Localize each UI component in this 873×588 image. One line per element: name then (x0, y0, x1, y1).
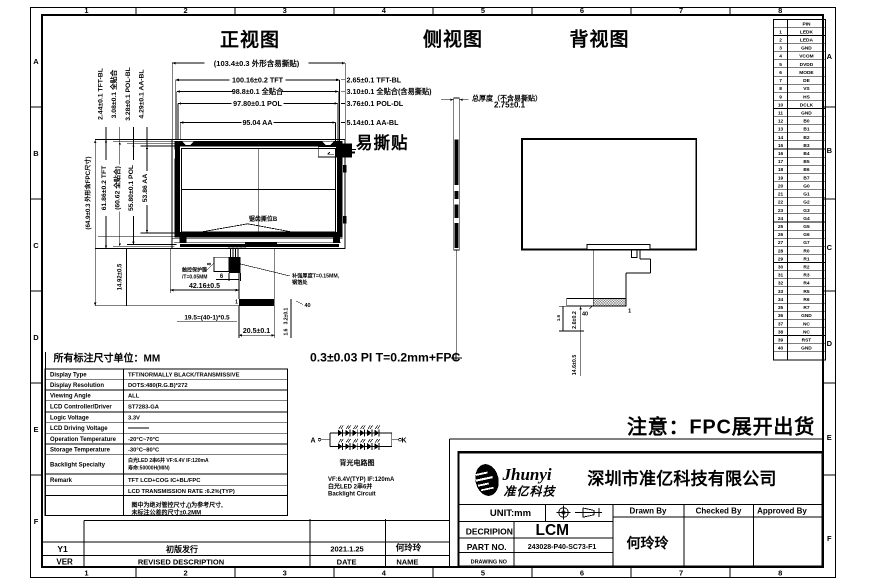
svg-text:7: 7 (779, 78, 782, 84)
svg-text:D: D (827, 339, 833, 348)
svg-text:LEDK: LEDK (800, 29, 814, 35)
svg-text:8: 8 (779, 86, 782, 92)
svg-text:所有标注尺寸单位：MM: 所有标注尺寸单位：MM (54, 352, 161, 365)
svg-text:14: 14 (778, 135, 784, 141)
svg-text:未标注公差的尺寸±0.2MM: 未标注公差的尺寸±0.2MM (132, 508, 202, 516)
svg-text:何玲玲: 何玲玲 (396, 543, 422, 553)
svg-text:GND: GND (801, 46, 812, 52)
svg-text:G5: G5 (803, 224, 810, 230)
svg-text:背视图: 背视图 (569, 28, 629, 51)
svg-text:B1: B1 (803, 127, 809, 133)
svg-text:1: 1 (628, 309, 631, 315)
svg-text:B7: B7 (803, 175, 809, 181)
svg-text:4.29±0.1 AA-BL: 4.29±0.1 AA-BL (138, 69, 145, 118)
svg-text:31: 31 (778, 273, 784, 279)
svg-text:8: 8 (778, 6, 782, 15)
svg-text:98.8±0.1 全贴合: 98.8±0.1 全贴合 (232, 87, 284, 96)
svg-text:R3: R3 (803, 273, 809, 279)
svg-text:19: 19 (778, 175, 784, 181)
svg-text:12: 12 (778, 119, 784, 125)
svg-text:B: B (33, 149, 39, 158)
svg-text:R0: R0 (803, 248, 809, 254)
svg-text:2.75±0.1: 2.75±0.1 (494, 101, 526, 110)
svg-text:(60.62 全贴合): (60.62 全贴合) (113, 166, 122, 210)
svg-text:8: 8 (778, 568, 782, 577)
svg-text:2021.1.25: 2021.1.25 (330, 545, 363, 554)
svg-text:深圳市准亿科技有限公司: 深圳市准亿科技有限公司 (587, 468, 776, 488)
svg-text:B2: B2 (803, 135, 809, 141)
svg-text:97.80±0.1 POL: 97.80±0.1 POL (233, 99, 282, 108)
svg-text:MODE: MODE (799, 70, 814, 76)
svg-text:G3: G3 (803, 208, 810, 214)
svg-text:DRAWING NO: DRAWING NO (471, 560, 508, 566)
svg-text:B6: B6 (803, 167, 809, 173)
svg-text:E: E (33, 425, 38, 434)
svg-text:5.14±0.1 AA-BL: 5.14±0.1 AA-BL (347, 118, 400, 127)
svg-text:Y1: Y1 (57, 544, 68, 554)
svg-text:42.16±0.5: 42.16±0.5 (189, 283, 220, 290)
svg-text:触控保护膜: 触控保护膜 (182, 266, 207, 273)
svg-text:NAME: NAME (396, 557, 418, 566)
svg-text:3: 3 (283, 6, 287, 15)
svg-text:Display Type: Display Type (50, 373, 87, 379)
svg-text:/T=0.05MM: /T=0.05MM (182, 274, 207, 280)
svg-text:-30°C~80°C: -30°C~80°C (128, 447, 160, 453)
svg-text:钢箔处: 钢箔处 (292, 278, 308, 286)
svg-text:GND: GND (801, 110, 812, 116)
svg-text:LEDA: LEDA (800, 38, 814, 44)
svg-text:Remark: Remark (50, 478, 73, 484)
svg-text:39: 39 (778, 337, 784, 343)
svg-text:27: 27 (778, 240, 784, 246)
svg-text:何玲玲: 何玲玲 (627, 535, 670, 551)
svg-text:6: 6 (580, 568, 584, 577)
svg-text:1: 1 (779, 29, 782, 35)
svg-text:23: 23 (778, 208, 784, 214)
svg-text:B0: B0 (803, 119, 809, 125)
svg-text:B3: B3 (803, 143, 809, 149)
svg-text:28: 28 (778, 248, 784, 254)
svg-text:初版发行: 初版发行 (166, 544, 198, 554)
svg-text:0.3±0.03 PI T=0.2mm+FPC: 0.3±0.03 PI T=0.2mm+FPC (310, 351, 461, 365)
svg-text:36: 36 (778, 313, 784, 319)
svg-text:G4: G4 (803, 216, 810, 222)
svg-text:3.10±0.1 全贴合(含易撕贴): 3.10±0.1 全贴合(含易撕贴) (347, 87, 433, 96)
svg-text:C: C (33, 241, 39, 250)
svg-text:11: 11 (778, 110, 783, 116)
svg-text:55.80±0.1 POL: 55.80±0.1 POL (128, 165, 135, 211)
svg-text:3.76±0.1 POL-DL: 3.76±0.1 POL-DL (347, 99, 404, 108)
svg-text:33: 33 (778, 289, 784, 295)
svg-text:34: 34 (778, 297, 784, 303)
svg-text:A: A (33, 57, 39, 66)
svg-text:1.6: 1.6 (283, 328, 289, 335)
svg-text:15: 15 (778, 143, 784, 149)
svg-text:DATE: DATE (337, 557, 357, 566)
svg-text:REVISED DESCRIPTION: REVISED DESCRIPTION (138, 557, 224, 566)
svg-text:ALL: ALL (128, 394, 140, 400)
svg-text:A: A (827, 52, 833, 61)
svg-text:白光LED 2串6并: 白光LED 2串6并 (328, 483, 372, 491)
svg-text:7: 7 (679, 568, 683, 577)
svg-text:20: 20 (778, 183, 784, 189)
svg-text:TFT LCD+COG IC+BL/FPC: TFT LCD+COG IC+BL/FPC (128, 478, 201, 484)
svg-text:VCOM: VCOM (799, 54, 813, 60)
svg-text:3: 3 (779, 46, 782, 52)
svg-text:6: 6 (580, 6, 584, 15)
svg-text:14.92±0.5: 14.92±0.5 (118, 263, 124, 290)
svg-text:(103.4±0.3 外形含易撕贴): (103.4±0.3 外形含易撕贴) (214, 58, 300, 68)
svg-text:NC: NC (803, 329, 810, 335)
svg-text:30: 30 (778, 265, 784, 271)
svg-text:G1: G1 (803, 192, 810, 198)
svg-text:2: 2 (184, 6, 188, 15)
svg-text:18: 18 (778, 167, 784, 173)
svg-text:Viewing Angle: Viewing Angle (50, 394, 91, 400)
svg-text:LCD Driving Voltage: LCD Driving Voltage (50, 426, 108, 432)
svg-text:G0: G0 (803, 183, 810, 189)
svg-text:寿命:50000H(MIN): 寿命:50000H(MIN) (127, 464, 170, 471)
svg-text:38: 38 (778, 329, 784, 335)
svg-text:G6: G6 (803, 232, 810, 238)
svg-text:7: 7 (679, 6, 683, 15)
svg-text:Jhunyi: Jhunyi (502, 465, 552, 484)
svg-text:3.08±0.1 全贴合: 3.08±0.1 全贴合 (109, 69, 118, 118)
svg-text:24: 24 (778, 216, 784, 222)
svg-text:DECRIPION: DECRIPION (466, 527, 513, 537)
svg-text:5: 5 (481, 568, 485, 577)
svg-text:F: F (34, 517, 39, 526)
svg-text:B4: B4 (803, 151, 809, 157)
svg-text:易撕贴: 易撕贴 (356, 133, 409, 153)
svg-text:R6: R6 (803, 297, 809, 303)
svg-text:准亿科技: 准亿科技 (504, 485, 557, 499)
svg-text:1.6: 1.6 (556, 314, 561, 321)
svg-text:4: 4 (779, 54, 782, 60)
svg-text:243028-P40-SC73-F1: 243028-P40-SC73-F1 (528, 544, 597, 551)
svg-text:PART NO.: PART NO. (467, 542, 507, 552)
svg-text:2: 2 (184, 568, 188, 577)
svg-text:HS: HS (803, 94, 810, 100)
svg-text:PIN: PIN (802, 21, 811, 27)
svg-text:10: 10 (778, 102, 784, 108)
svg-text:3.3V: 3.3V (128, 416, 140, 422)
svg-text:R1: R1 (803, 256, 809, 262)
svg-text:B: B (827, 146, 833, 155)
svg-text:17: 17 (778, 159, 784, 165)
svg-text:Operation Temperature: Operation Temperature (50, 437, 117, 443)
svg-text:RST: RST (802, 337, 812, 343)
svg-text:37: 37 (778, 321, 784, 327)
svg-text:图中为绝对管控尺寸,()为参考尺寸,: 图中为绝对管控尺寸,()为参考尺寸, (132, 501, 224, 509)
svg-text:背光电路图: 背光电路图 (340, 458, 375, 467)
svg-text:14.6±0.5: 14.6±0.5 (572, 355, 578, 376)
svg-text:白光LED 2串6并 VF:6.4V IF:120mA: 白光LED 2串6并 VF:6.4V IF:120mA (128, 457, 209, 464)
svg-text:GND: GND (801, 346, 812, 352)
svg-text:C: C (827, 243, 833, 252)
svg-text:40: 40 (778, 346, 784, 352)
svg-text:Storage Temperature: Storage Temperature (50, 447, 111, 453)
svg-text:Display Resolution: Display Resolution (50, 383, 104, 389)
svg-text:VF:6.4V(TYP) IF:120mA: VF:6.4V(TYP) IF:120mA (328, 477, 395, 483)
svg-text:25: 25 (778, 224, 784, 230)
svg-text:F: F (827, 534, 832, 543)
svg-text:5: 5 (481, 6, 485, 15)
svg-text:G7: G7 (803, 240, 810, 246)
svg-text:Logic Voltage: Logic Voltage (50, 416, 90, 422)
svg-text:Backlight Specialty: Backlight Specialty (50, 462, 106, 468)
svg-text:LCM: LCM (536, 522, 570, 539)
svg-text:补强厚度T=0.15MM,: 补强厚度T=0.15MM, (291, 272, 340, 280)
svg-text:侧视图: 侧视图 (423, 28, 483, 51)
svg-text:GND: GND (801, 313, 812, 319)
svg-text:1: 1 (84, 568, 88, 577)
svg-text:1: 1 (235, 300, 238, 306)
svg-text:100.16±0.2 TFT: 100.16±0.2 TFT (232, 76, 284, 85)
svg-text:正视图: 正视图 (220, 28, 280, 51)
svg-text:40: 40 (582, 312, 588, 318)
svg-text:DOTS:480(R.G.B)*272: DOTS:480(R.G.B)*272 (128, 383, 188, 389)
svg-text:R4: R4 (803, 281, 809, 287)
svg-text:1: 1 (84, 6, 88, 15)
svg-text:VS: VS (803, 86, 810, 92)
svg-text:Approved By: Approved By (757, 507, 807, 516)
svg-text:DCLK: DCLK (800, 102, 814, 108)
svg-text:VER: VER (56, 557, 73, 566)
svg-text:21: 21 (778, 192, 784, 198)
svg-text:UNIT:mm: UNIT:mm (490, 508, 531, 519)
svg-text:2: 2 (779, 38, 782, 44)
svg-text:R2: R2 (803, 265, 809, 271)
svg-text:注意：FPC展开出货: 注意：FPC展开出货 (627, 415, 815, 439)
svg-text:6: 6 (779, 70, 782, 76)
svg-text:3: 3 (283, 568, 287, 577)
svg-text:(64.9±0.3 外形含FPC尺寸): (64.9±0.3 外形含FPC尺寸) (84, 156, 92, 229)
svg-text:2.65±0.1 TFT-BL: 2.65±0.1 TFT-BL (347, 75, 402, 84)
svg-text:TFT/NORMALLY BLACK/TRANSMISSIV: TFT/NORMALLY BLACK/TRANSMISSIVE (128, 373, 240, 379)
svg-text:B5: B5 (803, 159, 809, 165)
svg-text:A: A (310, 437, 315, 444)
svg-text:R5: R5 (803, 289, 809, 295)
svg-text:E: E (827, 433, 832, 442)
svg-text:K: K (401, 438, 406, 445)
svg-text:22: 22 (778, 200, 784, 206)
svg-text:Checked By: Checked By (696, 507, 742, 516)
svg-text:D: D (33, 333, 39, 342)
svg-text:26: 26 (778, 232, 784, 238)
svg-text:锯齿撕位B: 锯齿撕位B (249, 215, 278, 223)
svg-text:16: 16 (778, 151, 784, 157)
svg-text:2.44±0.1 TFT-BL: 2.44±0.1 TFT-BL (98, 68, 105, 120)
svg-text:Backlight Circuit: Backlight Circuit (328, 492, 376, 498)
svg-text:40: 40 (305, 303, 311, 309)
svg-text:3.2±0.1: 3.2±0.1 (283, 307, 289, 324)
svg-text:53.86 AA: 53.86 AA (142, 174, 149, 203)
svg-text:20.5±0.1: 20.5±0.1 (243, 328, 270, 335)
svg-text:29: 29 (778, 256, 784, 262)
svg-text:35: 35 (778, 305, 784, 311)
svg-text:NC: NC (803, 321, 810, 327)
svg-text:LCD TRANSMISSION RATE :6.2%(TY: LCD TRANSMISSION RATE :6.2%(TYP) (128, 489, 235, 495)
svg-text:Drawn By: Drawn By (630, 507, 667, 516)
svg-text:61.86±0.2 TFT: 61.86±0.2 TFT (101, 165, 108, 210)
svg-text:-20°C~70°C: -20°C~70°C (128, 437, 160, 443)
svg-text:19.5=(40-1)*0.5: 19.5=(40-1)*0.5 (184, 315, 230, 322)
svg-text:3.28±0.1 POL-BL: 3.28±0.1 POL-BL (125, 67, 132, 121)
svg-text:32: 32 (778, 281, 784, 287)
svg-text:95.04 AA: 95.04 AA (242, 118, 272, 127)
svg-text:G2: G2 (803, 200, 810, 206)
svg-text:DVDD: DVDD (800, 62, 814, 68)
svg-text:DE: DE (803, 78, 810, 84)
svg-text:2.6±0.2: 2.6±0.2 (572, 311, 578, 329)
svg-text:ST7283-GA: ST7283-GA (128, 405, 160, 411)
svg-text:LCD Controller/Driver: LCD Controller/Driver (50, 405, 112, 411)
svg-text:9: 9 (779, 94, 782, 100)
svg-text:13: 13 (778, 127, 784, 133)
svg-text:R7: R7 (803, 305, 809, 311)
svg-text:5: 5 (779, 62, 782, 68)
